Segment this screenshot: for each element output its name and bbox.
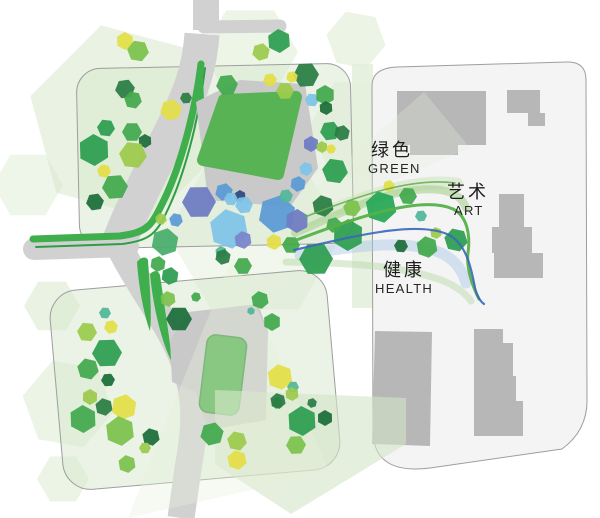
label-green-zh: 绿色 — [371, 141, 421, 160]
road — [204, 26, 280, 27]
landscape-wash — [327, 12, 386, 68]
label-art-en: ART — [454, 204, 489, 218]
site-plan-svg — [0, 0, 600, 518]
label-health-zone: 健康 HEALTH — [375, 261, 433, 296]
label-green-zone: 绿色 GREEN — [368, 141, 421, 176]
label-health-zh: 健康 — [383, 261, 433, 280]
label-green-en: GREEN — [368, 162, 421, 176]
label-art-zone: 艺术 ART — [447, 183, 489, 218]
label-health-en: HEALTH — [375, 282, 433, 296]
tree-hexagon — [151, 256, 166, 272]
landscape-masterplan: 绿色 GREEN 艺术 ART 健康 HEALTH — [0, 0, 600, 518]
label-art-zh: 艺术 — [447, 183, 489, 202]
green-roof-building — [203, 97, 296, 174]
